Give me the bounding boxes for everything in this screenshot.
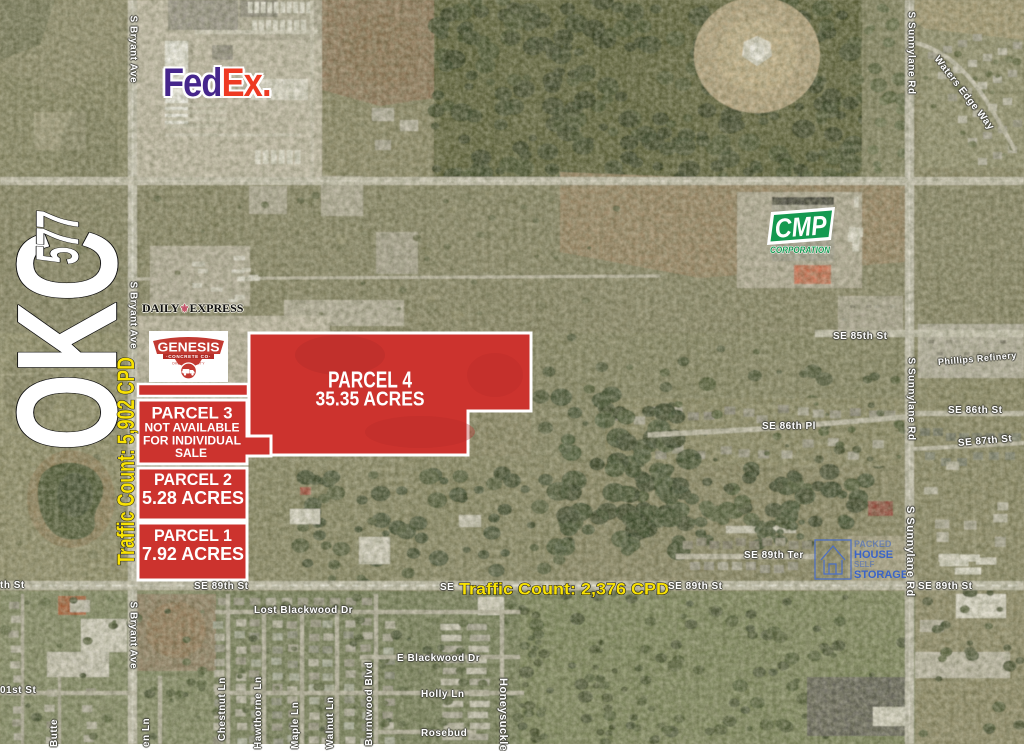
svg-text:5.28 ACRES: 5.28 ACRES <box>142 487 244 508</box>
svg-text:SALE: SALE <box>175 446 207 460</box>
svg-text:CORPORATION: CORPORATION <box>770 245 830 255</box>
svg-text:STORAGE: STORAGE <box>854 569 906 581</box>
svg-text:7.92 ACRES: 7.92 ACRES <box>142 543 244 564</box>
svg-text:PACKED: PACKED <box>854 539 892 549</box>
svg-text:SELF: SELF <box>854 560 875 569</box>
svg-text:CMP: CMP <box>774 210 829 244</box>
svg-text:PARCEL 3: PARCEL 3 <box>152 404 233 422</box>
svg-text:35.35 ACRES: 35.35 ACRES <box>316 389 425 411</box>
